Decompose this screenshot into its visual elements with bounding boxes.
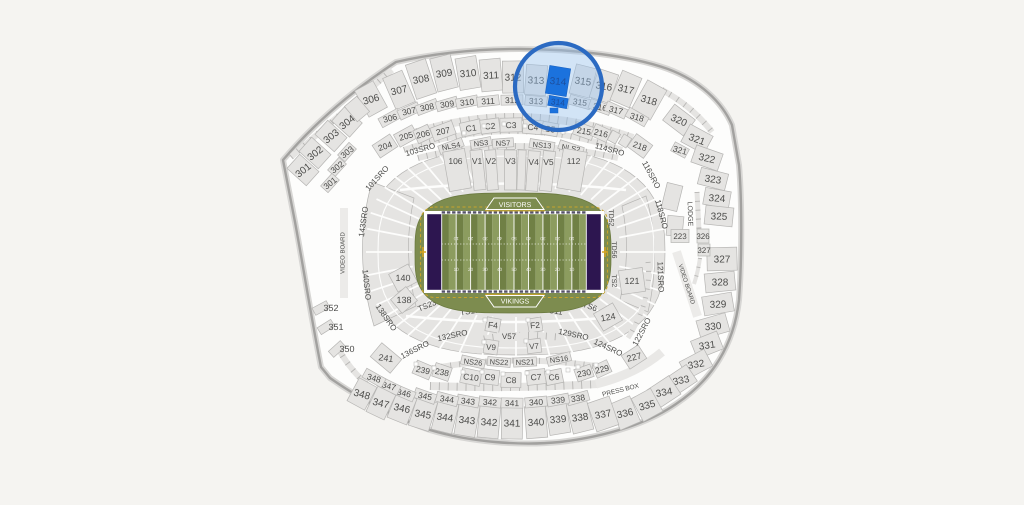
svg-text:112: 112 [567,156,581,166]
svg-text:344: 344 [436,412,454,425]
svg-text:350: 350 [339,344,354,354]
svg-text:241: 241 [378,352,394,364]
svg-text:NS7: NS7 [496,138,511,148]
svg-text:20: 20 [468,267,474,272]
svg-text:V7: V7 [529,342,540,352]
svg-text:VIDEO BOARD: VIDEO BOARD [340,232,347,274]
svg-text:343: 343 [460,395,475,406]
svg-text:341: 341 [504,419,521,430]
svg-text:314: 314 [549,76,567,88]
svg-text:328: 328 [712,278,729,289]
svg-text:40: 40 [497,267,503,272]
svg-text:329: 329 [710,299,727,311]
svg-text:324: 324 [708,193,726,205]
svg-text:10: 10 [453,236,459,241]
svg-text:40: 40 [526,267,532,272]
svg-text:C3: C3 [506,120,517,130]
svg-text:309: 309 [435,67,453,80]
svg-text:340: 340 [529,397,544,408]
svg-text:20: 20 [554,236,560,241]
svg-text:V5: V5 [543,157,554,167]
svg-text:V4: V4 [528,157,539,167]
svg-text:223: 223 [673,232,687,241]
svg-text:330: 330 [704,321,722,333]
svg-text:30: 30 [482,236,488,241]
svg-text:323: 323 [704,173,722,186]
svg-text:40: 40 [526,236,532,241]
svg-text:30: 30 [540,267,546,272]
svg-text:C7: C7 [530,372,542,383]
svg-text:310: 310 [459,96,474,108]
svg-text:F2: F2 [530,320,541,331]
svg-text:10: 10 [454,267,460,272]
svg-text:352: 352 [323,303,338,313]
svg-text:20: 20 [555,267,561,272]
svg-text:339: 339 [550,394,565,405]
svg-text:310: 310 [459,68,477,81]
svg-text:F4: F4 [488,320,499,331]
svg-text:351: 351 [328,322,343,332]
svg-text:342: 342 [483,397,498,408]
svg-text:40: 40 [497,236,503,241]
svg-text:VISITORS: VISITORS [499,202,532,209]
svg-text:121: 121 [624,276,639,286]
svg-text:341: 341 [505,398,520,408]
svg-text:30: 30 [483,267,489,272]
svg-text:V9: V9 [486,343,497,353]
svg-text:TS2: TS2 [610,274,617,287]
svg-text:140: 140 [395,273,410,283]
svg-text:30: 30 [540,236,546,241]
svg-text:20: 20 [468,236,474,241]
svg-text:339: 339 [549,414,567,427]
svg-text:340: 340 [527,417,545,429]
svg-text:V2: V2 [486,156,497,166]
svg-text:V57: V57 [502,332,517,341]
svg-text:311: 311 [483,70,500,82]
svg-text:327: 327 [697,246,711,255]
svg-text:50: 50 [511,236,517,241]
svg-text:326: 326 [696,232,710,241]
svg-text:338: 338 [571,411,589,424]
svg-text:343: 343 [458,415,476,428]
svg-text:327: 327 [714,255,731,266]
svg-text:338: 338 [570,392,586,404]
svg-text:NS21: NS21 [515,357,534,367]
svg-text:C9: C9 [484,372,496,383]
svg-text:10: 10 [569,236,575,241]
svg-text:C8: C8 [506,375,517,385]
svg-text:V3: V3 [505,156,516,166]
svg-text:VIKINGS: VIKINGS [501,299,530,306]
svg-text:311: 311 [481,96,495,107]
svg-text:121SRO: 121SRO [655,261,665,292]
svg-text:LODGE: LODGE [686,202,694,227]
svg-text:NS22: NS22 [489,357,508,367]
svg-text:NS3: NS3 [473,138,488,149]
svg-text:10: 10 [569,267,575,272]
svg-text:138: 138 [396,295,411,305]
svg-text:NS13: NS13 [532,140,551,151]
svg-text:344: 344 [439,393,455,405]
svg-text:325: 325 [710,211,727,223]
svg-text:V1: V1 [472,156,483,166]
svg-text:314: 314 [550,96,565,107]
svg-text:106: 106 [448,156,462,166]
svg-text:50: 50 [511,267,517,272]
svg-text:C1: C1 [465,122,477,133]
svg-text:342: 342 [480,417,498,429]
